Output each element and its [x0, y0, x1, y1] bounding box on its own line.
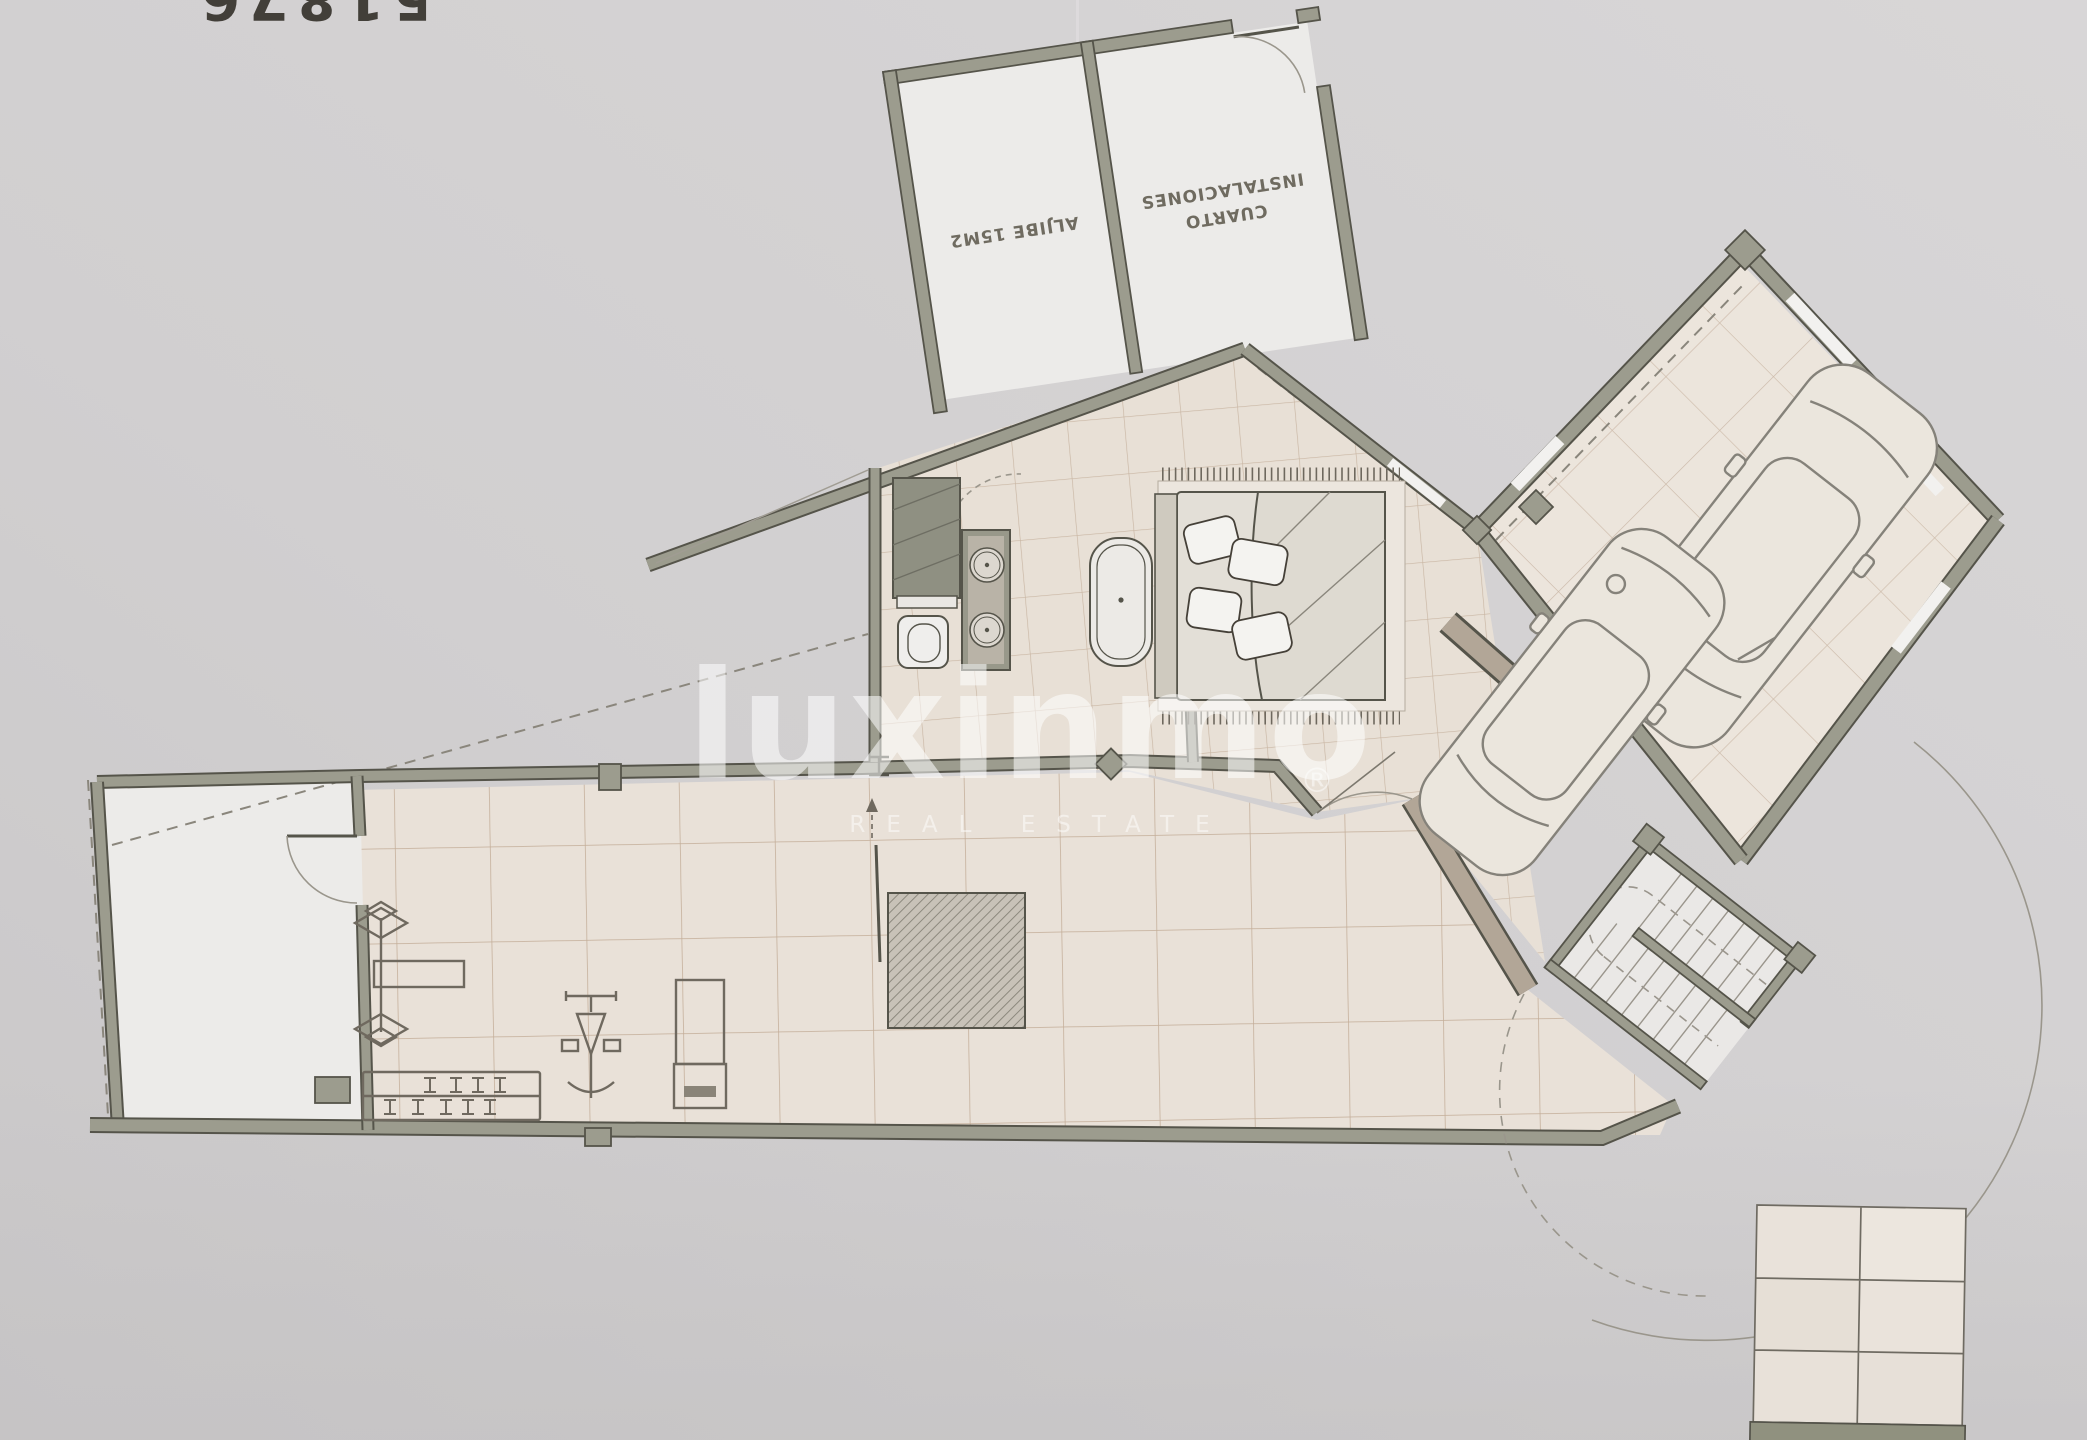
legend-table: 60X120 = 125M2	[1749, 1205, 1969, 1440]
vanity-sink-1	[970, 548, 1004, 582]
wardrobe	[893, 478, 960, 598]
wing-wall-column	[599, 764, 621, 790]
legend-caption-bar	[1750, 1422, 1966, 1440]
watermark-brand: luxinmo	[687, 640, 1374, 814]
wardrobe-shelf	[897, 596, 957, 608]
bottom-wall-notch	[585, 1128, 611, 1146]
storage-room-floor	[95, 782, 368, 1126]
cutoff-header-text: 51876	[192, 0, 432, 31]
floor-plan-svg: 51876 ALJIBE 15M2 INSTALACIONES CUARTO	[0, 0, 2087, 1440]
watermark: luxinmo ® REAL ESTATE	[687, 640, 1374, 838]
watermark-tagline: REAL ESTATE	[849, 812, 1230, 838]
upper-top-wall-right	[1296, 7, 1320, 23]
watermark-registered-icon: ®	[1300, 761, 1334, 801]
floor-plan-photo: 51876 ALJIBE 15M2 INSTALACIONES CUARTO	[0, 0, 2087, 1440]
storage-corner-column	[315, 1077, 350, 1103]
